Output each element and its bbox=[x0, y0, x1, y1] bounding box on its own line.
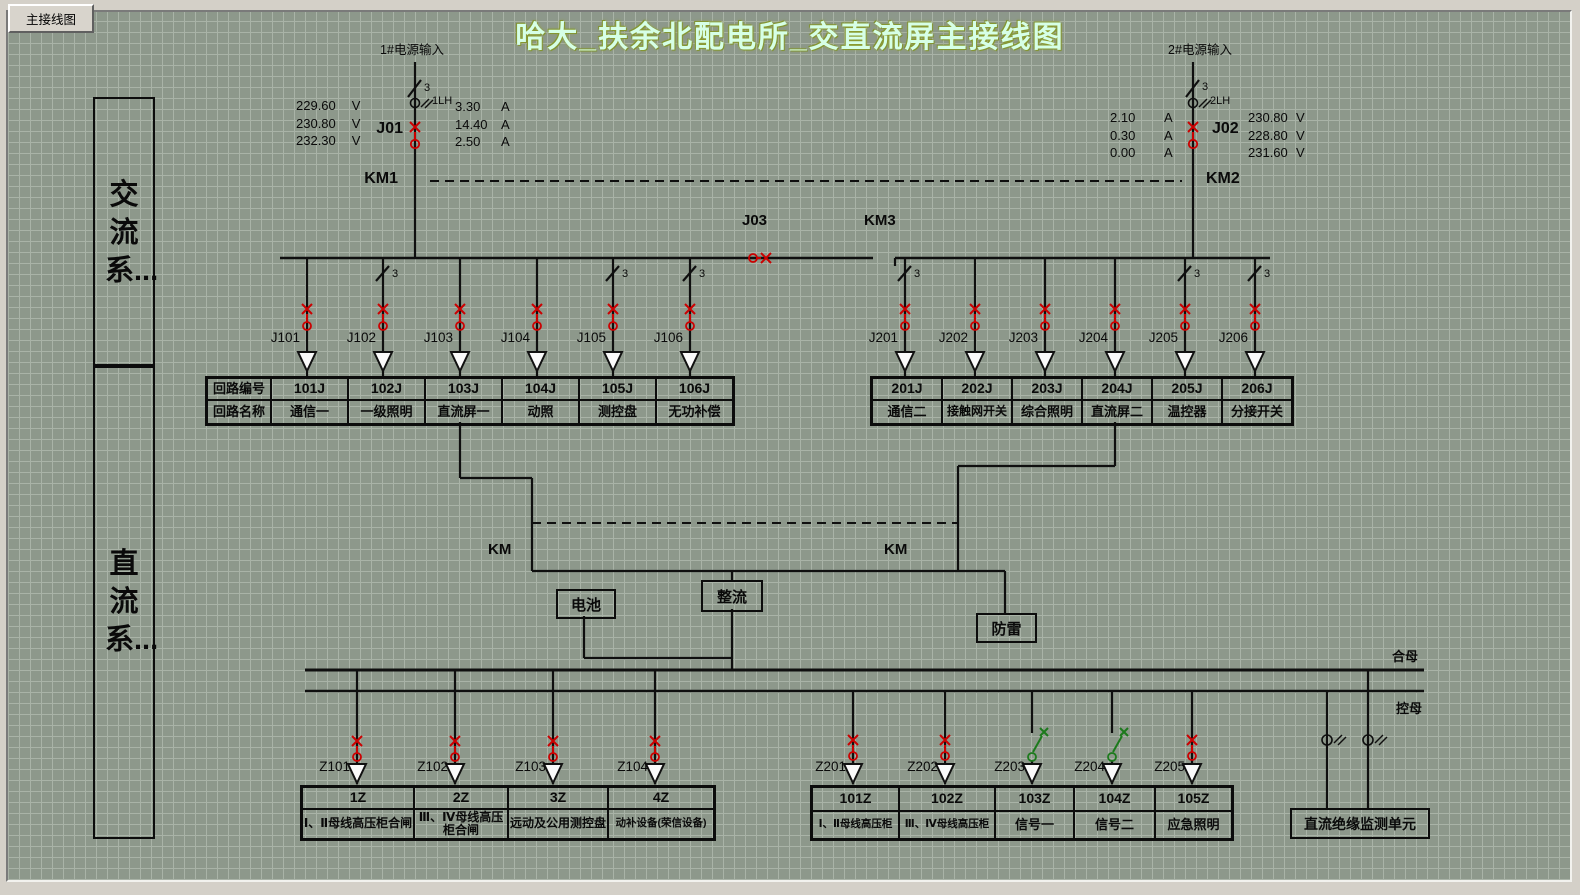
circuit-code: 3Z bbox=[508, 787, 608, 809]
feeder-J101-label: J101 bbox=[250, 330, 300, 345]
voltage-value: 229.60 bbox=[296, 97, 336, 115]
circuit-code: 1Z bbox=[302, 787, 414, 809]
ac-left-feeder-table: 回路编号 101J 102J 103J 104J 105J 106J 回路名称 … bbox=[205, 376, 735, 426]
current-value: 3.30 bbox=[455, 98, 501, 116]
circuit-name: 无功补偿 bbox=[656, 400, 733, 424]
feeder-J102-label: J102 bbox=[326, 330, 376, 345]
circuit-name: 远动及公用测控盘 bbox=[508, 809, 608, 839]
circuit-code: 101Z bbox=[812, 787, 899, 811]
breaker-J02-label: J02 bbox=[1212, 120, 1239, 138]
feeder-J105-label: J105 bbox=[556, 330, 606, 345]
circuit-name: 直流屏二 bbox=[1082, 400, 1152, 424]
circuit-code: 102J bbox=[348, 378, 425, 400]
circuit-code: 201J bbox=[872, 378, 942, 400]
closing-bus-label: 合母 bbox=[1392, 646, 1418, 665]
dc-section-box: 直流系... bbox=[93, 364, 155, 839]
circuit-code: 105J bbox=[579, 378, 656, 400]
feeder-Z203-label: Z203 bbox=[975, 759, 1025, 774]
circuit-name: Ⅰ、Ⅱ母线高压柜合闸 bbox=[302, 809, 414, 839]
feeder-J201-label: J201 bbox=[848, 330, 898, 345]
current-value: 0.00 bbox=[1110, 144, 1146, 162]
source2-voltage-readout: 230.80V 228.80V 231.60V bbox=[1248, 109, 1305, 162]
ac-section-label: 交流系... bbox=[105, 176, 143, 290]
phase-mark: 3 bbox=[1194, 268, 1200, 280]
feeder-Z204-label: Z204 bbox=[1055, 759, 1105, 774]
voltage-value: 228.80 bbox=[1248, 127, 1296, 145]
current-value: 2.10 bbox=[1110, 109, 1146, 127]
circuit-name: Ⅲ、Ⅳ母线高压柜合闸 bbox=[414, 809, 508, 839]
contactor-KM-left-label: KM bbox=[488, 541, 511, 558]
source1-label: 1#电源输入 bbox=[352, 39, 472, 58]
scada-window: 主接线图 哈大_扶余北配电所_交直流屏主接线图 交流系... 直流系... bbox=[0, 0, 1580, 895]
feeder-Z205-label: Z205 bbox=[1135, 759, 1185, 774]
dc-insulation-monitor-box: 直流绝缘监测单元 bbox=[1290, 808, 1430, 839]
current-unit: A bbox=[1164, 127, 1173, 145]
source1-phase-count: 3 bbox=[424, 82, 430, 94]
circuit-code: 102Z bbox=[899, 787, 995, 811]
source2-current-readout: 2.10A 0.30A 0.00A bbox=[1110, 109, 1173, 162]
voltage-value: 232.30 bbox=[296, 132, 336, 150]
circuit-name: 通信二 bbox=[872, 400, 942, 424]
source1-current-readout: 3.30A 14.40A 2.50A bbox=[455, 98, 510, 151]
circuit-code: 103J bbox=[425, 378, 502, 400]
circuit-code: 2Z bbox=[414, 787, 508, 809]
voltage-value: 231.60 bbox=[1248, 144, 1296, 162]
circuit-code: 206J bbox=[1222, 378, 1292, 400]
rectifier-box: 整流 bbox=[701, 580, 763, 612]
circuit-code: 4Z bbox=[608, 787, 714, 809]
voltage-unit: V bbox=[1296, 127, 1305, 145]
circuit-name: 应急照明 bbox=[1155, 811, 1232, 839]
circuit-name: 信号一 bbox=[995, 811, 1074, 839]
feeder-Z101-label: Z101 bbox=[300, 759, 350, 774]
current-value: 14.40 bbox=[455, 116, 501, 134]
voltage-value: 230.80 bbox=[296, 115, 336, 133]
tab-main-wiring[interactable]: 主接线图 bbox=[8, 4, 94, 33]
circuit-code: 204J bbox=[1082, 378, 1152, 400]
circuit-name: 直流屏一 bbox=[425, 400, 502, 424]
circuit-name: 一级照明 bbox=[348, 400, 425, 424]
voltage-unit: V bbox=[352, 97, 361, 115]
phase-mark: 3 bbox=[914, 268, 920, 280]
feeder-J202-label: J202 bbox=[918, 330, 968, 345]
ac-right-feeder-table: 201J 202J 203J 204J 205J 206J 通信二 接触网开关 … bbox=[870, 376, 1294, 426]
current-unit: A bbox=[501, 98, 510, 116]
circuit-code: 101J bbox=[271, 378, 348, 400]
feeder-Z202-label: Z202 bbox=[888, 759, 938, 774]
dc-right-feeder-table: 101Z 102Z 103Z 104Z 105Z Ⅰ、Ⅱ母线高压柜 Ⅲ、Ⅳ母线高… bbox=[810, 785, 1234, 841]
feeder-Z103-label: Z103 bbox=[496, 759, 546, 774]
circuit-name: 分接开关 bbox=[1222, 400, 1292, 424]
circuit-code: 103Z bbox=[995, 787, 1074, 811]
voltage-unit: V bbox=[1296, 144, 1305, 162]
circuit-name: 温控器 bbox=[1152, 400, 1222, 424]
circuit-code: 202J bbox=[942, 378, 1012, 400]
circuit-name: 动照 bbox=[502, 400, 579, 424]
circuit-name: 信号二 bbox=[1074, 811, 1155, 839]
dc-section-label: 直流系... bbox=[105, 545, 143, 659]
phase-mark: 3 bbox=[622, 268, 628, 280]
battery-box: 电池 bbox=[556, 589, 616, 619]
source1-ct-label: 1LH bbox=[432, 95, 452, 107]
contactor-KM-right-label: KM bbox=[884, 541, 907, 558]
breaker-J03-label: J03 bbox=[742, 212, 767, 229]
current-value: 0.30 bbox=[1110, 127, 1146, 145]
feeder-Z104-label: Z104 bbox=[598, 759, 648, 774]
feeder-J203-label: J203 bbox=[988, 330, 1038, 345]
row-header: 回路名称 bbox=[207, 400, 271, 424]
dc-left-feeder-table: 1Z 2Z 3Z 4Z Ⅰ、Ⅱ母线高压柜合闸 Ⅲ、Ⅳ母线高压柜合闸 远动及公用测… bbox=[300, 785, 716, 841]
source2-phase-count: 3 bbox=[1202, 81, 1208, 93]
feeder-J104-label: J104 bbox=[480, 330, 530, 345]
phase-mark: 3 bbox=[392, 268, 398, 280]
control-bus-label: 控母 bbox=[1396, 698, 1422, 717]
voltage-unit: V bbox=[352, 132, 361, 150]
current-value: 2.50 bbox=[455, 133, 501, 151]
row-header: 回路编号 bbox=[207, 378, 271, 400]
circuit-code: 205J bbox=[1152, 378, 1222, 400]
feeder-Z102-label: Z102 bbox=[398, 759, 448, 774]
source1-voltage-readout: 229.60V 230.80V 232.30V bbox=[296, 97, 360, 150]
circuit-code: 106J bbox=[656, 378, 733, 400]
phase-mark: 3 bbox=[1264, 268, 1270, 280]
current-unit: A bbox=[1164, 144, 1173, 162]
voltage-unit: V bbox=[1296, 109, 1305, 127]
circuit-name: 测控盘 bbox=[579, 400, 656, 424]
feeder-J204-label: J204 bbox=[1058, 330, 1108, 345]
contactor-KM1-label: KM1 bbox=[336, 170, 398, 188]
circuit-name: Ⅲ、Ⅳ母线高压柜 bbox=[899, 811, 995, 839]
ac-section-box: 交流系... bbox=[93, 97, 155, 368]
circuit-name: 通信一 bbox=[271, 400, 348, 424]
feeder-J103-label: J103 bbox=[403, 330, 453, 345]
feeder-Z201-label: Z201 bbox=[796, 759, 846, 774]
circuit-name: Ⅰ、Ⅱ母线高压柜 bbox=[812, 811, 899, 839]
circuit-code: 105Z bbox=[1155, 787, 1232, 811]
current-unit: A bbox=[501, 133, 510, 151]
circuit-name: 接触网开关 bbox=[942, 400, 1012, 424]
phase-mark: 3 bbox=[699, 268, 705, 280]
current-unit: A bbox=[1164, 109, 1173, 127]
circuit-code: 104J bbox=[502, 378, 579, 400]
source2-label: 2#电源输入 bbox=[1140, 39, 1260, 58]
contactor-KM3-label: KM3 bbox=[864, 212, 896, 229]
voltage-unit: V bbox=[352, 115, 361, 133]
wiring-lines bbox=[280, 62, 1424, 808]
feeder-J206-label: J206 bbox=[1198, 330, 1248, 345]
feeder-J205-label: J205 bbox=[1128, 330, 1178, 345]
source2-ct-label: 2LH bbox=[1210, 95, 1230, 107]
contactor-KM2-label: KM2 bbox=[1206, 170, 1240, 188]
voltage-value: 230.80 bbox=[1248, 109, 1296, 127]
current-unit: A bbox=[501, 116, 510, 134]
feeder-J106-label: J106 bbox=[633, 330, 683, 345]
lightning-arrester-box: 防雷 bbox=[976, 613, 1037, 643]
circuit-code: 203J bbox=[1012, 378, 1082, 400]
circuit-code: 104Z bbox=[1074, 787, 1155, 811]
circuit-name: 动补设备(荣信设备) bbox=[608, 809, 714, 839]
circuit-name: 综合照明 bbox=[1012, 400, 1082, 424]
